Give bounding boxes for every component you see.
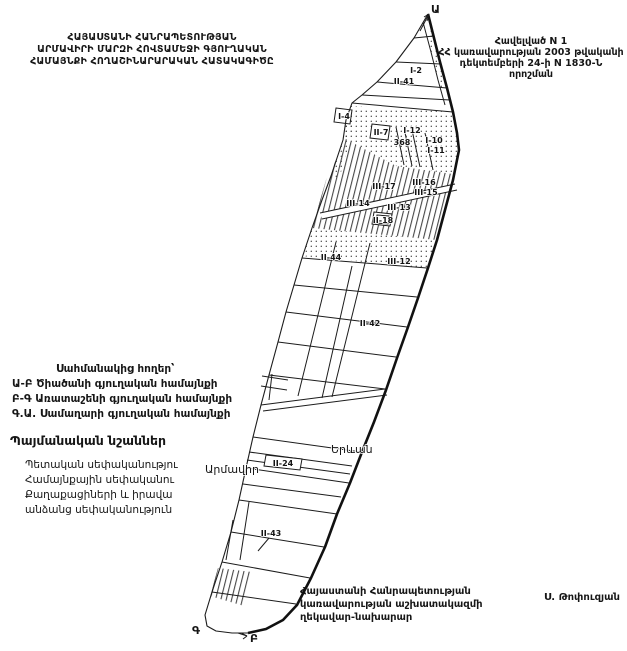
parcel-label: II-44 (321, 253, 342, 262)
parcel-label: III-16 (412, 178, 436, 187)
parcel-label: II-18 (373, 216, 394, 225)
parcel-label: II-7 (374, 128, 389, 137)
parcel-label: III-14 (346, 199, 370, 208)
parcel-label: II-24 (273, 459, 294, 468)
parcel-label: I-4 (338, 112, 350, 121)
parcel-label: II-42 (360, 319, 380, 328)
parcel-lines-mid (212, 242, 427, 604)
parcel-label: I-2 (410, 66, 422, 75)
boundary-point-g: Գ (192, 624, 201, 637)
parcel-label: I-10 (425, 136, 443, 145)
parcel-label: III-12 (387, 257, 410, 266)
place-label-yerevan: Երևան (331, 443, 373, 456)
parcel-label: III-17 (372, 182, 395, 191)
cadastral-plan-sheet: ՀԱՅԱՍՏԱՆԻ ՀԱՆՐԱՊԵՏՈՒԹՅԱՆ ԱՐՄԱՎԻՐԻ ՄԱՐԶԻ … (0, 0, 627, 651)
hatch-areas (210, 138, 453, 606)
boundary-point-a: Ա (431, 3, 440, 16)
boundary-point-b: Բ (250, 632, 258, 645)
parcel-label: I-11 (427, 146, 445, 155)
parcel-label: III-13 (387, 203, 410, 212)
cadastral-map: Ա Գ Բ Արմավիր Երևան I-2 II-41 I-4 II-7 I… (0, 0, 627, 651)
parcel-label: III-15 (414, 188, 438, 197)
parcel-label: 368 (394, 138, 411, 147)
place-label-armavir: Արմավիր (205, 463, 259, 476)
parcel-label: I-12 (403, 126, 420, 135)
parcel-label: II-43 (261, 529, 281, 538)
parcel-label: II-41 (394, 77, 415, 86)
